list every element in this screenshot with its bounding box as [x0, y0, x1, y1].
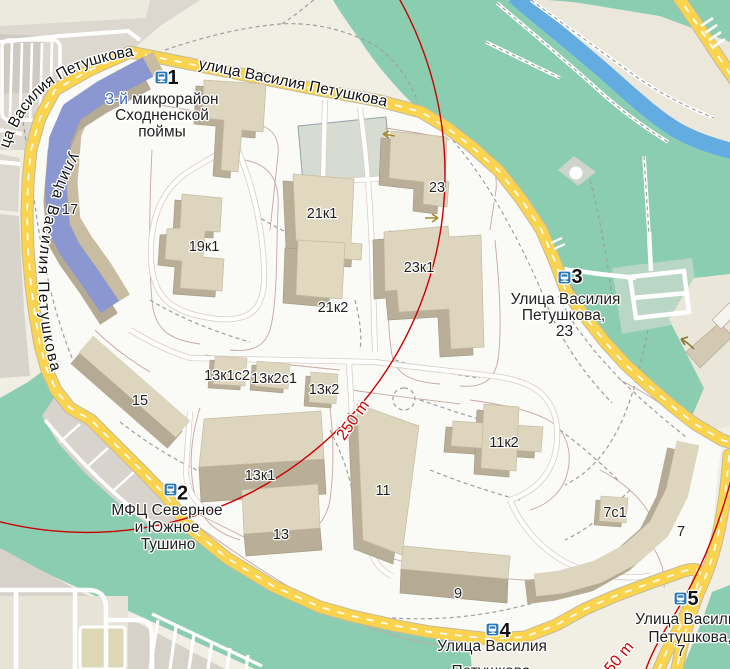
svg-text:17: 17: [62, 202, 78, 218]
svg-text:поймы: поймы: [138, 124, 185, 141]
svg-text:9: 9: [454, 586, 462, 602]
svg-text:13: 13: [273, 527, 289, 543]
svg-text:21к1: 21к1: [307, 206, 338, 222]
svg-text:Тушино: Тушино: [141, 536, 196, 553]
svg-text:19к1: 19к1: [189, 239, 220, 255]
svg-text:13к2с1: 13к2с1: [251, 371, 297, 387]
svg-text:7: 7: [677, 643, 686, 660]
svg-text:15: 15: [132, 393, 148, 409]
svg-text:23: 23: [429, 180, 445, 196]
svg-text:21к2: 21к2: [318, 300, 349, 316]
svg-text:5: 5: [688, 588, 699, 610]
svg-text:Сходненской: Сходненской: [115, 107, 209, 124]
svg-text:Петушкова,: Петушкова,: [648, 629, 730, 646]
svg-text:13к2: 13к2: [309, 382, 340, 398]
svg-text:11к2: 11к2: [489, 435, 518, 451]
svg-text:3-й микрорайон: 3-й микрорайон: [105, 91, 218, 108]
svg-text:3: 3: [572, 266, 583, 288]
svg-text:23: 23: [556, 323, 573, 340]
svg-text:13к1: 13к1: [245, 468, 276, 484]
svg-text:1: 1: [168, 67, 179, 89]
svg-text:Петушкова: Петушкова: [452, 663, 531, 669]
svg-text:11: 11: [375, 483, 390, 499]
svg-text:7с1: 7с1: [603, 505, 626, 521]
svg-text:Улица Василия: Улица Василия: [437, 638, 547, 655]
svg-text:7: 7: [677, 524, 685, 540]
svg-text:Улица Василия: Улица Василия: [511, 291, 621, 308]
svg-text:МФЦ Северное: МФЦ Северное: [111, 502, 222, 519]
svg-text:Петушкова,: Петушкова,: [522, 307, 605, 324]
svg-text:Улица Василия: Улица Василия: [635, 611, 730, 628]
svg-text:13к1с2: 13к1с2: [204, 368, 250, 384]
svg-text:23к1: 23к1: [404, 260, 435, 276]
svg-text:и Южное: и Южное: [135, 519, 200, 536]
